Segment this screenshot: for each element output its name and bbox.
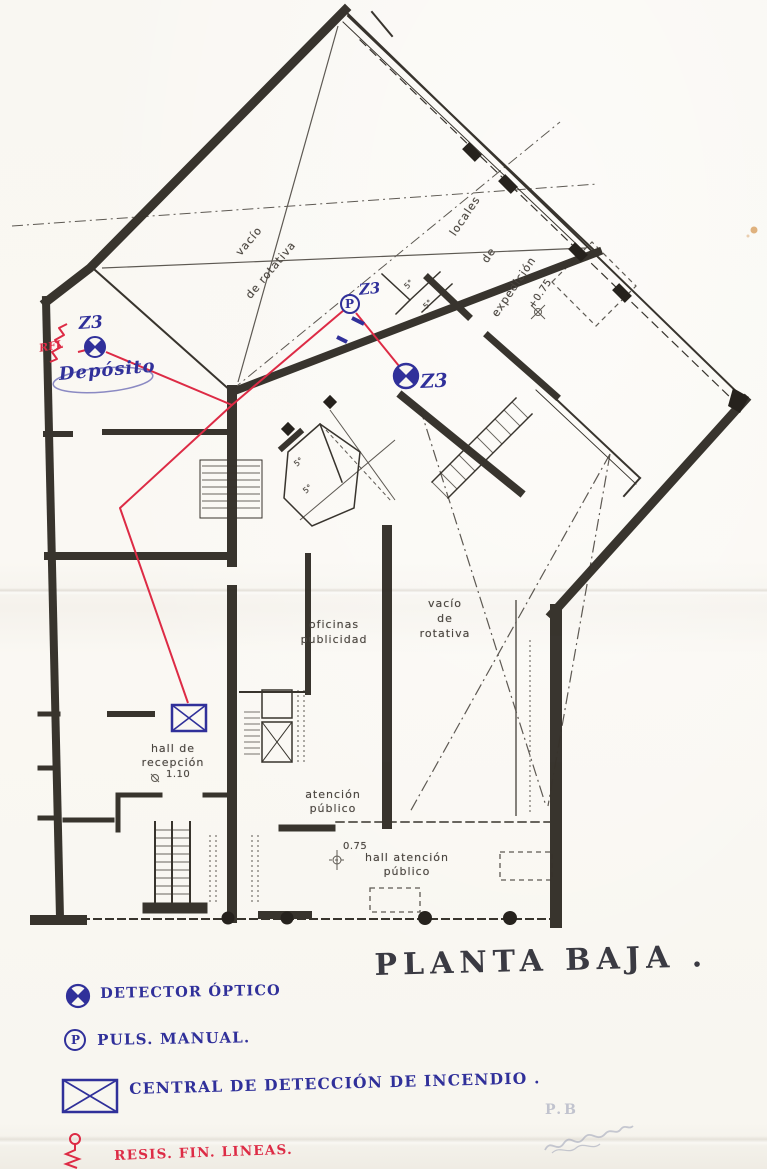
walls <box>35 10 745 922</box>
scan-speck <box>747 235 750 238</box>
label-hall-atencion-line1: hall atención <box>363 851 451 865</box>
level-marker-recepcion <box>151 774 159 782</box>
legend-central-icon <box>63 1080 117 1112</box>
scanned-floor-plan-page: vacío de rotativa locales de expedición … <box>0 0 767 1169</box>
legend-detector-icon <box>67 985 89 1007</box>
legend-symbols <box>63 985 117 1168</box>
level-marker-hall-atencion <box>329 850 345 870</box>
label-vacio-mid-line2: de <box>417 611 473 626</box>
control-panel-plan-symbol <box>172 705 206 731</box>
label-vacio-mid-line3: rotativa <box>417 626 473 641</box>
pencil-note: P.B <box>545 1102 579 1118</box>
label-hall-atencion-line2: público <box>363 865 451 879</box>
label-level-recepcion: 1.10 <box>166 768 190 781</box>
legend-resistor-icon <box>66 1134 80 1168</box>
pushbutton-letter: P <box>345 297 354 311</box>
label-vacio-mid-line1: vacío <box>417 596 473 611</box>
label-oficinas-line2: publicidad <box>288 632 380 647</box>
zone-marker-z3-2: Z3 <box>358 279 381 299</box>
pencil-scribble <box>545 1126 633 1153</box>
legend-detector-label: DETECTOR ÓPTICO <box>100 982 281 1002</box>
label-oficinas-publicidad: oficinas publicidad <box>288 617 380 647</box>
blue-tick-mark <box>337 337 347 342</box>
label-vacio-rotativa-mid: vacío de rotativa <box>417 596 473 641</box>
optical-detector-symbol-2 <box>394 364 418 388</box>
label-hall-atencion: hall atención público <box>363 851 451 879</box>
scan-speck <box>751 227 758 234</box>
zone-marker-z3-3: Z3 <box>420 370 448 393</box>
label-atencion-line1: atención <box>299 788 367 802</box>
label-atencion-line2: público <box>299 802 367 816</box>
stair-hatching <box>156 402 528 894</box>
label-oficinas-line1: oficinas <box>288 617 380 632</box>
optical-detector-symbol-1 <box>85 337 105 357</box>
blue-tick-mark <box>352 318 364 324</box>
label-hall-recepcion-line1: hall de <box>131 742 215 756</box>
legend-pushbutton-label: PULS. MANUAL. <box>97 1028 251 1049</box>
bracing-and-detail-lines <box>12 26 636 912</box>
zone-marker-z3-1: Z3 <box>78 312 104 334</box>
label-atencion-publico: atención público <box>299 788 367 816</box>
label-hall-recepcion: hall de recepción <box>131 742 215 770</box>
legend-pushbutton-letter: P <box>71 1033 80 1047</box>
